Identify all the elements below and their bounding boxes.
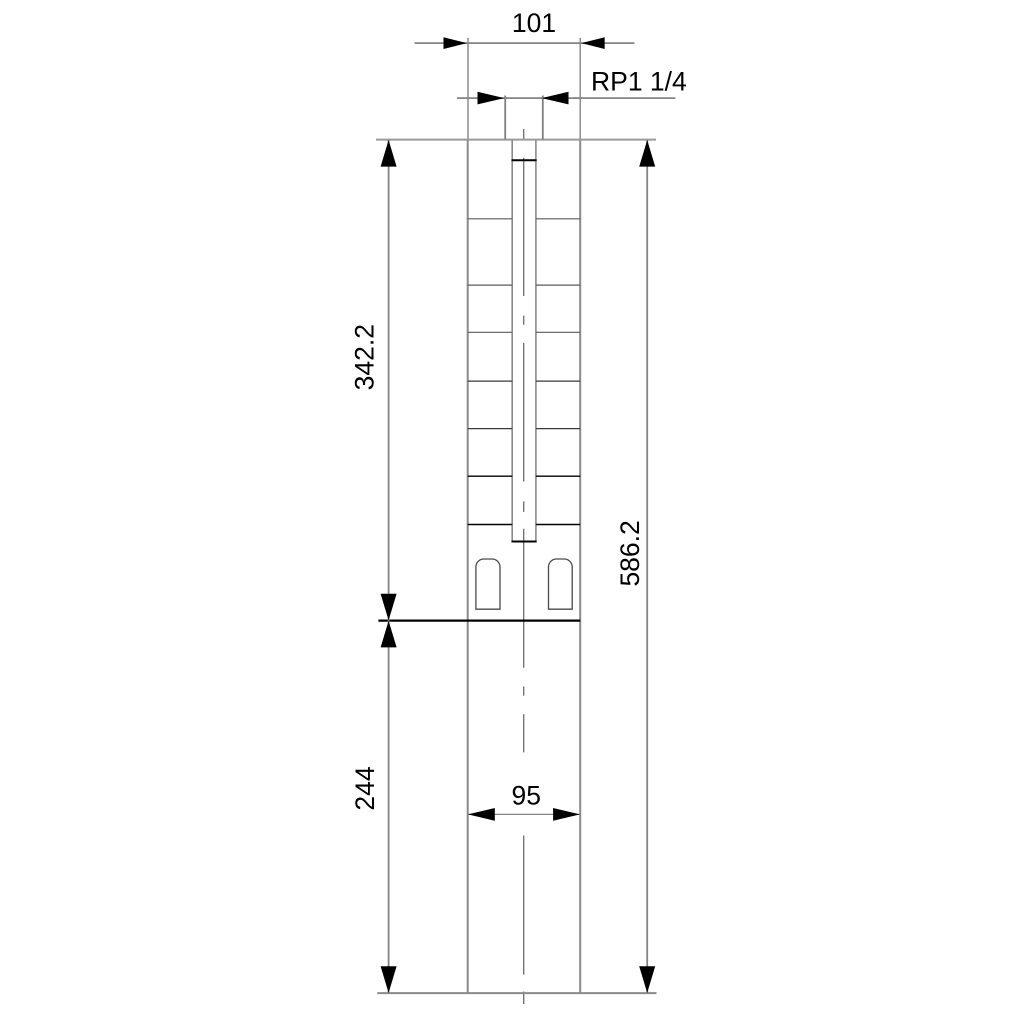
svg-text:342.2: 342.2 (350, 324, 380, 390)
svg-text:RP1 1/4: RP1 1/4 (591, 67, 687, 97)
svg-text:101: 101 (512, 8, 556, 38)
svg-text:95: 95 (511, 781, 540, 811)
svg-text:586.2: 586.2 (615, 520, 645, 586)
svg-text:244: 244 (350, 766, 380, 810)
